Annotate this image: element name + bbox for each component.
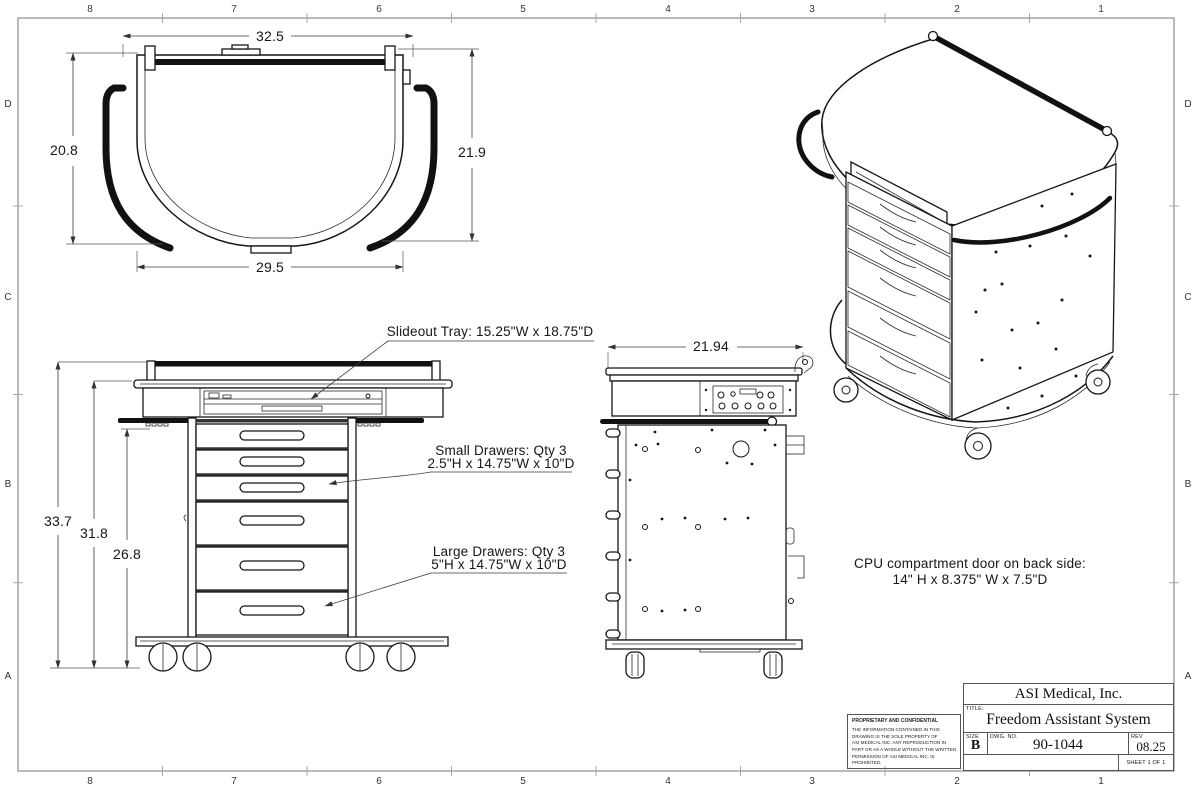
svg-text:Slideout Tray: 15.25"W x 18.75: Slideout Tray: 15.25"W x 18.75"D bbox=[387, 324, 594, 339]
zone-col: 5 bbox=[520, 776, 526, 787]
key-lock bbox=[184, 515, 186, 521]
svg-text:21.9: 21.9 bbox=[458, 144, 486, 160]
proprietary-heading: PROPRIETARY AND CONFIDENTIAL bbox=[852, 718, 957, 724]
drawing-title-cell: TITLE: Freedom Assistant System bbox=[964, 705, 1173, 733]
column-rail-right bbox=[348, 418, 356, 639]
svg-text:32.5: 32.5 bbox=[256, 28, 284, 44]
proprietary-body: THE INFORMATION CONTAINED IN THIS DRAWIN… bbox=[852, 727, 957, 767]
zone-col: 7 bbox=[231, 4, 237, 15]
zone-col: 3 bbox=[809, 4, 815, 15]
top-bottom-tab bbox=[251, 246, 291, 253]
dim-front-overall: 33.7 bbox=[44, 362, 146, 668]
zone-col: 8 bbox=[87, 4, 93, 15]
side-worktop bbox=[606, 368, 802, 375]
svg-text:31.8: 31.8 bbox=[80, 525, 108, 541]
dim-front-mid: 31.8 bbox=[80, 381, 132, 668]
front-view: 33.7 31.8 26.8 Slideout Tray: 15.25"W x … bbox=[44, 324, 594, 671]
iso-side-handle bbox=[799, 112, 832, 177]
size-label: SIZE bbox=[966, 734, 979, 740]
annotation-large-drawers: Large Drawers: Qty 3 5"H x 14.75"W x 10"… bbox=[325, 544, 567, 606]
rev-cell: REV 08.25 bbox=[1129, 733, 1173, 754]
zone-numbers-bottom: 8 7 6 5 4 3 2 1 bbox=[87, 776, 1104, 787]
front-casters bbox=[149, 643, 415, 671]
zone-col: 3 bbox=[809, 776, 815, 787]
side-shelf-rail bbox=[600, 419, 772, 424]
dwg-no-label: DWG. NO. bbox=[990, 734, 1018, 740]
zone-col: 6 bbox=[376, 776, 382, 787]
handle-clamp-left bbox=[145, 46, 155, 70]
zone-col: 2 bbox=[954, 776, 960, 787]
zone-row: D bbox=[4, 99, 11, 110]
svg-text:14" H x 8.375" W x 7.5"D: 14" H x 8.375" W x 7.5"D bbox=[893, 572, 1048, 587]
side-rail-left bbox=[106, 88, 170, 248]
zone-col: 6 bbox=[376, 4, 382, 15]
zone-col: 8 bbox=[87, 776, 93, 787]
dim-top-width-bottom: 29.5 bbox=[137, 251, 403, 275]
side-right-fittings bbox=[786, 436, 804, 604]
front-tray-compartment bbox=[143, 388, 443, 417]
drawing-canvas: 8 7 6 5 4 3 2 1 8 7 6 5 4 3 2 1 D C B A … bbox=[0, 0, 1200, 790]
dwg-no-cell: DWG. NO. 90-1044 bbox=[988, 733, 1129, 754]
svg-text:5"H x 14.75"W x 10"D: 5"H x 14.75"W x 10"D bbox=[431, 557, 566, 572]
svg-text:CPU compartment door on back s: CPU compartment door on back side: bbox=[854, 556, 1086, 571]
annotation-cpu-compartment: CPU compartment door on back side: 14" H… bbox=[854, 556, 1086, 587]
annotation-small-drawers: Small Drawers: Qty 3 2.5"H x 14.75"W x 1… bbox=[329, 443, 575, 484]
zone-row: A bbox=[5, 671, 12, 682]
drawing-sheet: 8 7 6 5 4 3 2 1 8 7 6 5 4 3 2 1 D C B A … bbox=[0, 0, 1200, 790]
dim-front-lower: 26.8 bbox=[113, 429, 150, 668]
zone-col: 5 bbox=[520, 4, 526, 15]
top-view: 32.5 20.8 21.9 29.5 bbox=[50, 28, 486, 275]
svg-text:26.8: 26.8 bbox=[113, 546, 141, 562]
svg-text:21.94: 21.94 bbox=[693, 338, 729, 354]
dim-top-width: 32.5 bbox=[123, 28, 413, 57]
zone-row: C bbox=[4, 292, 11, 303]
zone-row: D bbox=[1184, 99, 1191, 110]
svg-text:33.7: 33.7 bbox=[44, 513, 72, 529]
top-side-tab bbox=[403, 70, 410, 84]
zone-col: 1 bbox=[1098, 4, 1104, 15]
side-base bbox=[606, 640, 802, 649]
isometric-view bbox=[799, 32, 1118, 460]
zone-row: B bbox=[5, 479, 12, 490]
push-handle-bar bbox=[152, 59, 388, 65]
zone-col: 4 bbox=[665, 776, 671, 787]
front-drawers bbox=[184, 419, 348, 635]
sheet-of-cell: SHEET 1 OF 1 bbox=[1118, 755, 1173, 770]
proprietary-notice: PROPRIETARY AND CONFIDENTIAL THE INFORMA… bbox=[847, 714, 961, 769]
zone-col: 2 bbox=[954, 4, 960, 15]
column-rail-left bbox=[188, 418, 196, 639]
top-latch bbox=[222, 49, 260, 55]
svg-text:29.5: 29.5 bbox=[256, 259, 284, 275]
iso-push-handle bbox=[933, 36, 1107, 131]
side-casters bbox=[626, 652, 782, 678]
dim-side-depth: 21.94 bbox=[608, 338, 803, 370]
title-label: TITLE: bbox=[966, 706, 984, 712]
handle-clamp-right bbox=[385, 46, 395, 70]
zone-col: 7 bbox=[231, 776, 237, 787]
zone-row: C bbox=[1184, 292, 1191, 303]
side-rail-right bbox=[370, 88, 434, 248]
size-cell: SIZE B bbox=[964, 733, 988, 754]
front-push-rail bbox=[150, 361, 438, 367]
zone-row: B bbox=[1185, 479, 1192, 490]
zone-row: A bbox=[1185, 671, 1192, 682]
svg-text:2.5"H x 14.75"W x 10"D: 2.5"H x 14.75"W x 10"D bbox=[427, 456, 574, 471]
rev-label: REV bbox=[1131, 734, 1143, 740]
title-block: ASI Medical, Inc. TITLE: Freedom Assista… bbox=[963, 683, 1174, 771]
top-view-body bbox=[137, 55, 403, 246]
company-name: ASI Medical, Inc. bbox=[964, 684, 1173, 705]
svg-text:20.8: 20.8 bbox=[50, 142, 78, 158]
side-connector-panel bbox=[612, 381, 796, 416]
zone-col: 4 bbox=[665, 4, 671, 15]
drawing-title: Freedom Assistant System bbox=[964, 705, 1173, 735]
zone-col: 1 bbox=[1098, 776, 1104, 787]
